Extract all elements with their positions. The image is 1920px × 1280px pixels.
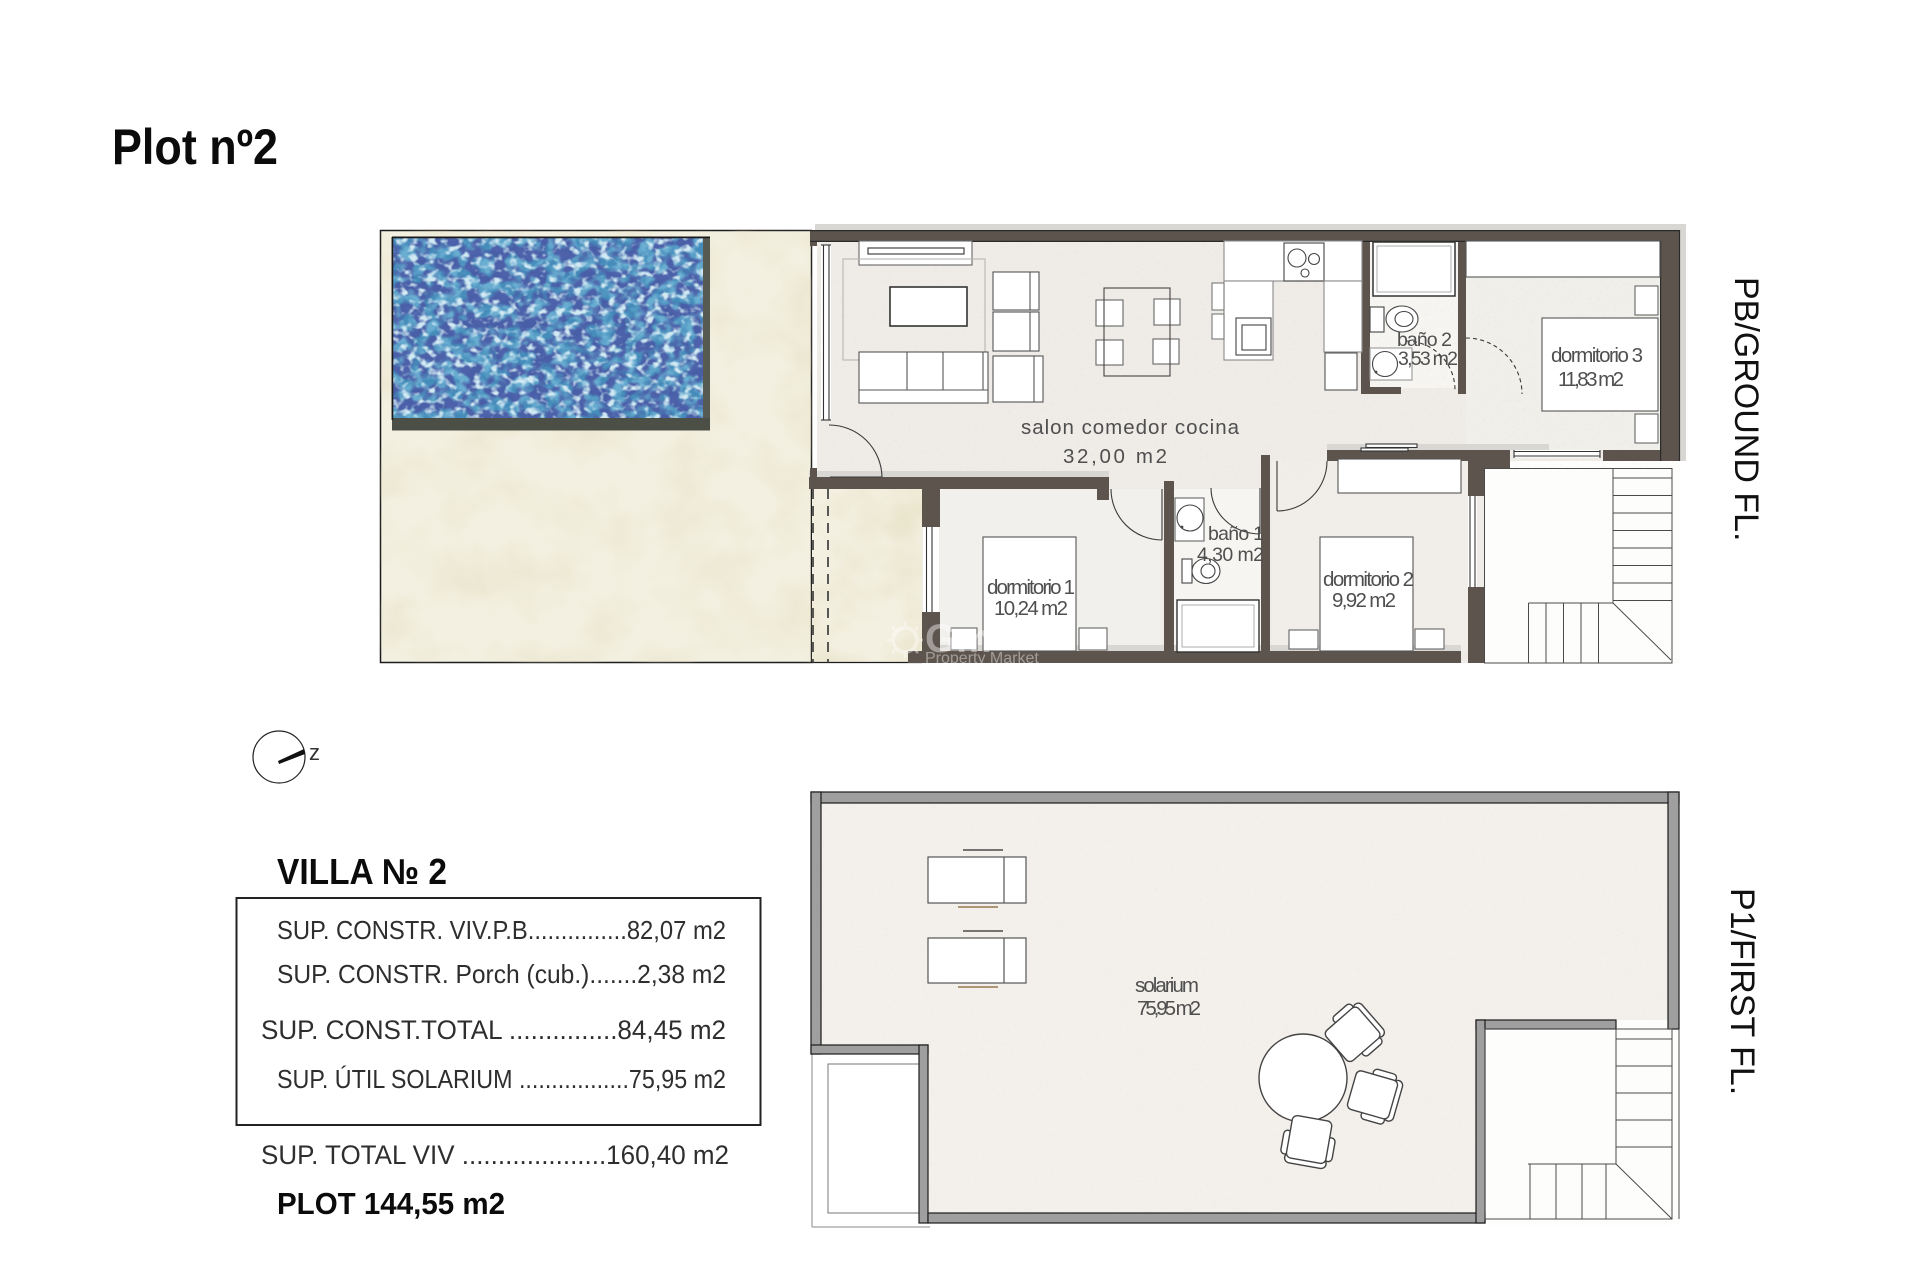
svg-text:11,83 m2: 11,83 m2 [1558,368,1624,391]
svg-text:SUP. TOTAL VIV ...............: SUP. TOTAL VIV ....................160,4… [261,1140,729,1170]
svg-text:dormitorio 1: dormitorio 1 [987,576,1075,599]
svg-text:10,24 m2: 10,24 m2 [994,597,1068,620]
svg-text:4,30 m2: 4,30 m2 [1197,544,1264,566]
svg-text:32,00 m2: 32,00 m2 [1063,445,1167,468]
svg-text:SUP. CONSTR. VIV.P.B..........: SUP. CONSTR. VIV.P.B...............82,07… [277,915,726,945]
svg-text:salon comedor cocina: salon comedor cocina [1021,416,1240,439]
svg-text:dormitorio 3: dormitorio 3 [1551,344,1643,367]
svg-text:75,95 m2: 75,95 m2 [1137,997,1201,1020]
svg-text:Plot nº2: Plot nº2 [112,119,278,175]
svg-text:VILLA № 2: VILLA № 2 [277,851,447,892]
svg-text:dormitorio 2: dormitorio 2 [1323,568,1414,591]
svg-text:SUP. CONSTR. Porch (cub.).....: SUP. CONSTR. Porch (cub.).......2,38 m2 [277,959,726,989]
svg-text:baño 1: baño 1 [1208,523,1264,545]
svg-text:P1/FIRST FL.: P1/FIRST FL. [1723,888,1761,1095]
svg-text:SUP. CONST.TOTAL .............: SUP. CONST.TOTAL ...............84,45 m2 [261,1015,726,1045]
svg-text:SUP. ÚTIL SOLARIUM ...........: SUP. ÚTIL SOLARIUM .................75,9… [277,1064,726,1094]
svg-text:9,92 m2: 9,92 m2 [1332,589,1396,612]
svg-text:solarium: solarium [1135,974,1199,997]
svg-text:PLOT 144,55 m2: PLOT 144,55 m2 [277,1186,505,1221]
svg-text:PB/GROUND FL.: PB/GROUND FL. [1727,277,1765,541]
svg-text:3,53 m2: 3,53 m2 [1398,348,1458,370]
svg-text:Property Market: Property Market [925,650,1039,667]
svg-text:z: z [309,740,320,765]
